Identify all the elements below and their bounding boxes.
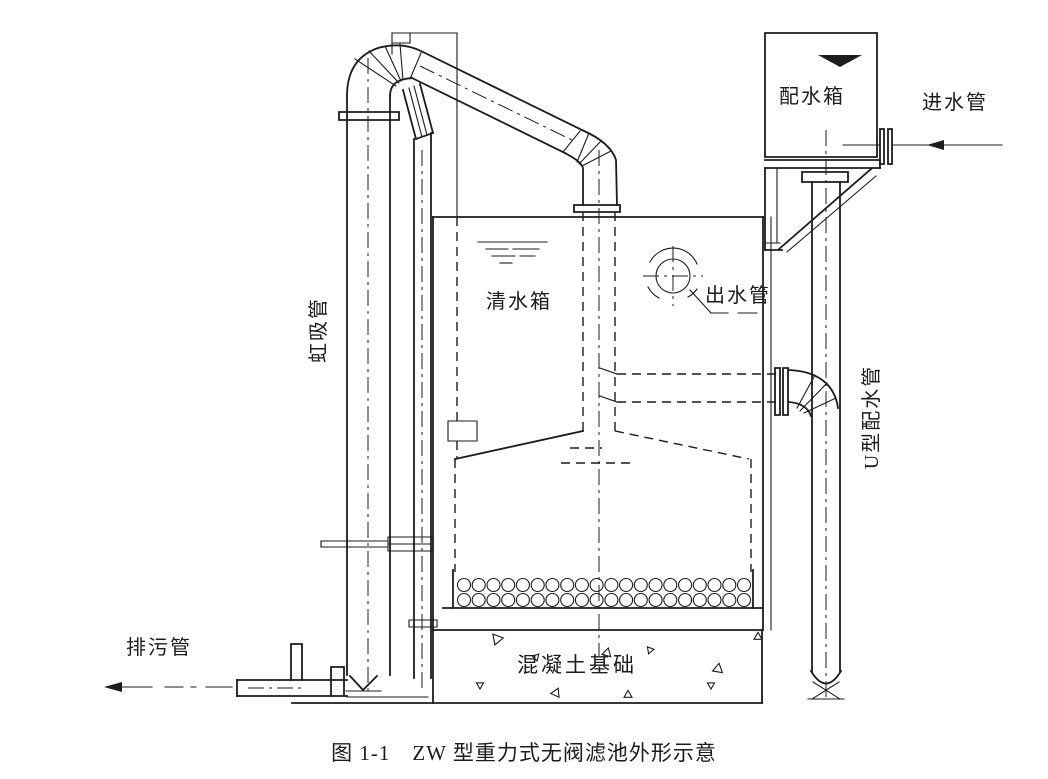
label-siphon-pipe: 虹吸管 [309,288,329,372]
distribution-hood [455,431,749,463]
horizontal-connecting-pipe [600,368,838,416]
siphon-diagonal-run [412,52,617,205]
label-u-type-distribution-pipe: U型配水管 [862,351,882,483]
figure-caption: 图 1-1 ZW 型重力式无阀滤池外形示意 [0,737,1048,767]
label-outlet-pipe: 出水管 [705,286,771,306]
label-distribution-box: 配水箱 [779,87,845,107]
siphon-pipe [339,44,423,692]
inlet-pipe [843,129,1002,164]
filter-media-box [443,459,763,608]
water-level-symbol [478,242,547,263]
label-inlet-pipe: 进水管 [922,93,988,113]
u-type-distribution-pipe [808,130,844,699]
auxiliary-siphon-pipe [403,84,437,690]
distribution-box [765,33,880,252]
figure-page: 配水箱 进水管 虹吸管 清水箱 出水管 U型配水管 排污管 混凝土基础 图 1-… [0,0,1048,779]
label-concrete-foundation: 混凝土基础 [517,655,637,676]
label-drain-pipe: 排污管 [126,638,192,658]
central-distribution-pipe [574,150,620,656]
label-clear-water-tank: 清水箱 [486,292,552,312]
pipe-clamp [321,537,433,551]
filter-nozzles [458,579,751,607]
